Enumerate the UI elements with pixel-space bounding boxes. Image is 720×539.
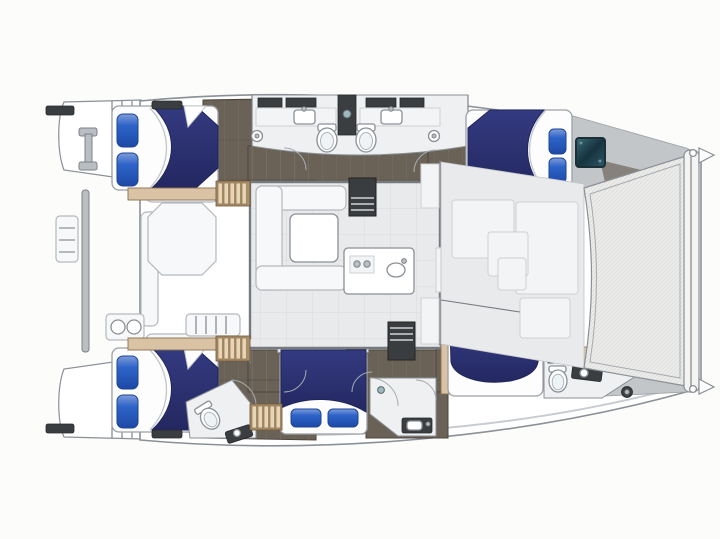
deck-hatch [152, 430, 182, 438]
port-aft-cabin [112, 106, 218, 200]
burner [364, 261, 370, 267]
toilet [549, 366, 567, 392]
deck-hatch [400, 98, 424, 107]
cockpit-step-unit [186, 314, 240, 336]
faucet [426, 422, 430, 426]
pillow [117, 114, 138, 147]
pillow [328, 409, 358, 427]
transom-step-slats [46, 106, 74, 115]
pillow [291, 409, 321, 427]
trampoline [584, 156, 686, 386]
floor-plan-page [0, 0, 720, 539]
staircase-down-port-forward [349, 178, 376, 216]
berth-shelf [128, 188, 218, 200]
staircase-down-starboard-forward [388, 322, 415, 360]
forward-door-leaf [436, 248, 441, 292]
galley-sink [387, 263, 405, 277]
staircase-salon-to-starboard-aft [216, 336, 250, 361]
pillow [549, 129, 566, 154]
toilet [317, 124, 337, 152]
sink [407, 421, 422, 430]
deck-winch-center [255, 134, 259, 138]
anchor-roller [690, 150, 697, 157]
pillow [117, 395, 138, 428]
pillow [117, 153, 138, 186]
deck-hatch [258, 98, 282, 107]
staircase-salon-to-port-aft [216, 181, 250, 206]
sink [381, 110, 402, 124]
faucet [302, 107, 306, 111]
foredeck [441, 162, 584, 368]
hatch-hinge [580, 142, 583, 145]
shower-head [378, 387, 385, 394]
deck-hatch [286, 98, 316, 107]
foredeck-panel [520, 298, 570, 338]
berth-shelf [128, 338, 218, 350]
wet-bar-grill [106, 314, 144, 340]
galley-tall-cabinet [421, 298, 439, 344]
toilet [356, 124, 376, 152]
deck-hatch [152, 101, 182, 109]
salon-table [290, 214, 338, 262]
staircase-starboard-hull [250, 404, 282, 430]
cockpit-table [148, 203, 216, 275]
transom-step-slats [46, 424, 74, 433]
shower-head [343, 110, 351, 118]
galley-tall-cabinet [421, 164, 439, 208]
deck-winch-center [432, 134, 436, 138]
basin [580, 369, 588, 377]
faucet [389, 107, 393, 111]
sink [294, 110, 315, 124]
basin [234, 430, 241, 437]
anchor-roller [690, 386, 697, 393]
faucet [402, 259, 407, 264]
deck-hatch [366, 98, 396, 107]
foredeck-panel [498, 258, 526, 290]
pillow [117, 356, 138, 389]
catamaran-floor-plan [0, 0, 720, 539]
burner [354, 261, 360, 267]
windlass-center [625, 390, 629, 394]
hatch-hinge [599, 160, 602, 163]
